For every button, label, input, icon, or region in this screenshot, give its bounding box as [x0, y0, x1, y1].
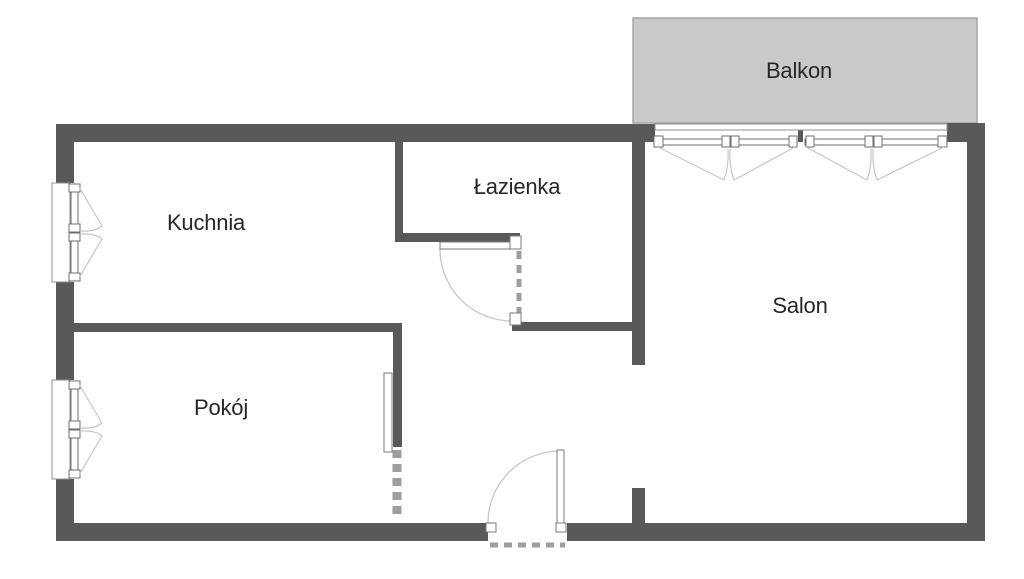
room-label-balkon: Balkon [766, 60, 832, 82]
bathroom-door-pivot [510, 313, 521, 325]
wall-bottom-right [567, 523, 985, 541]
window-pokoj-swing [80, 431, 102, 436]
wall-salon-west-lower [632, 488, 645, 523]
window-pokoj-handle [69, 421, 80, 429]
wall-top [56, 124, 655, 142]
room-label-pokoj: Pokój [194, 397, 248, 419]
window-pokoj-swing [79, 436, 102, 475]
balcony-window-swing [730, 149, 734, 180]
entrance-door-hinge [556, 523, 566, 532]
window-kitchen-handle [69, 224, 80, 232]
balcony-window-swing [806, 147, 867, 180]
window-kitchen-swing [79, 239, 102, 278]
window-pokoj-handle [69, 430, 80, 438]
window-pokoj-swing [80, 423, 102, 428]
window-kitchen-swing [79, 187, 102, 226]
entrance-door-leaf [557, 450, 564, 524]
wall-salon-west-upper [632, 142, 645, 365]
wall-bathroom-west [395, 142, 403, 242]
balcony-window-handle [865, 136, 873, 147]
room-label-kuchnia: Kuchnia [167, 212, 245, 234]
balcony-window-sill [655, 124, 947, 130]
wall-right [967, 123, 985, 541]
floor-plan [0, 0, 1024, 579]
balcony-window-swing [867, 149, 871, 180]
bathroom-door-leaf [440, 242, 516, 249]
balcony-window-handle [874, 136, 882, 147]
wall-left-upper [56, 124, 74, 183]
balcony-window-swing [877, 147, 944, 180]
balcony-window-handle [789, 136, 797, 147]
wall-room-divider [74, 323, 402, 332]
window-pokoj-swing [79, 384, 102, 423]
balcony-window-swing [724, 149, 728, 180]
window-pokoj-handle [69, 381, 80, 389]
window-kitchen-handle [69, 233, 80, 241]
window-kitchen-swing [80, 234, 102, 239]
bathroom-door-swing-arc [440, 249, 512, 321]
wall-hall-south [512, 322, 645, 331]
balcony-window-swing [658, 147, 724, 180]
wall-bathroom-south [395, 233, 520, 242]
balcony-window-handle [722, 136, 730, 147]
window-kitchen-handle [69, 184, 80, 192]
window-pokoj-handle [69, 470, 80, 478]
balcony-window-handle [731, 136, 739, 147]
window-kitchen-sill [52, 183, 70, 282]
room-label-salon: Salon [772, 295, 827, 317]
balcony-window-handle [806, 136, 814, 147]
entrance-door-hinge [486, 523, 496, 532]
window-pokoj-sill [52, 380, 70, 479]
balcony-window-handle [654, 136, 663, 147]
balcony-window-swing [873, 149, 877, 180]
wall-bottom-left [56, 523, 488, 541]
bathroom-door-pivot [510, 236, 521, 249]
wall-pokoj-east [393, 323, 402, 447]
window-kitchen-swing [80, 226, 102, 231]
room-label-lazienka: Łazienka [474, 176, 560, 198]
floor-plan-canvas: Balkon Kuchnia Łazienka Pokój Salon [0, 0, 1024, 579]
entrance-door-swing-arc [488, 451, 560, 523]
balcony-window-swing [734, 147, 795, 180]
wall-left-middle [56, 282, 74, 380]
window-kitchen-handle [69, 273, 80, 281]
pokoj-door-leaf [384, 373, 392, 452]
balcony-window-handle [938, 136, 947, 147]
